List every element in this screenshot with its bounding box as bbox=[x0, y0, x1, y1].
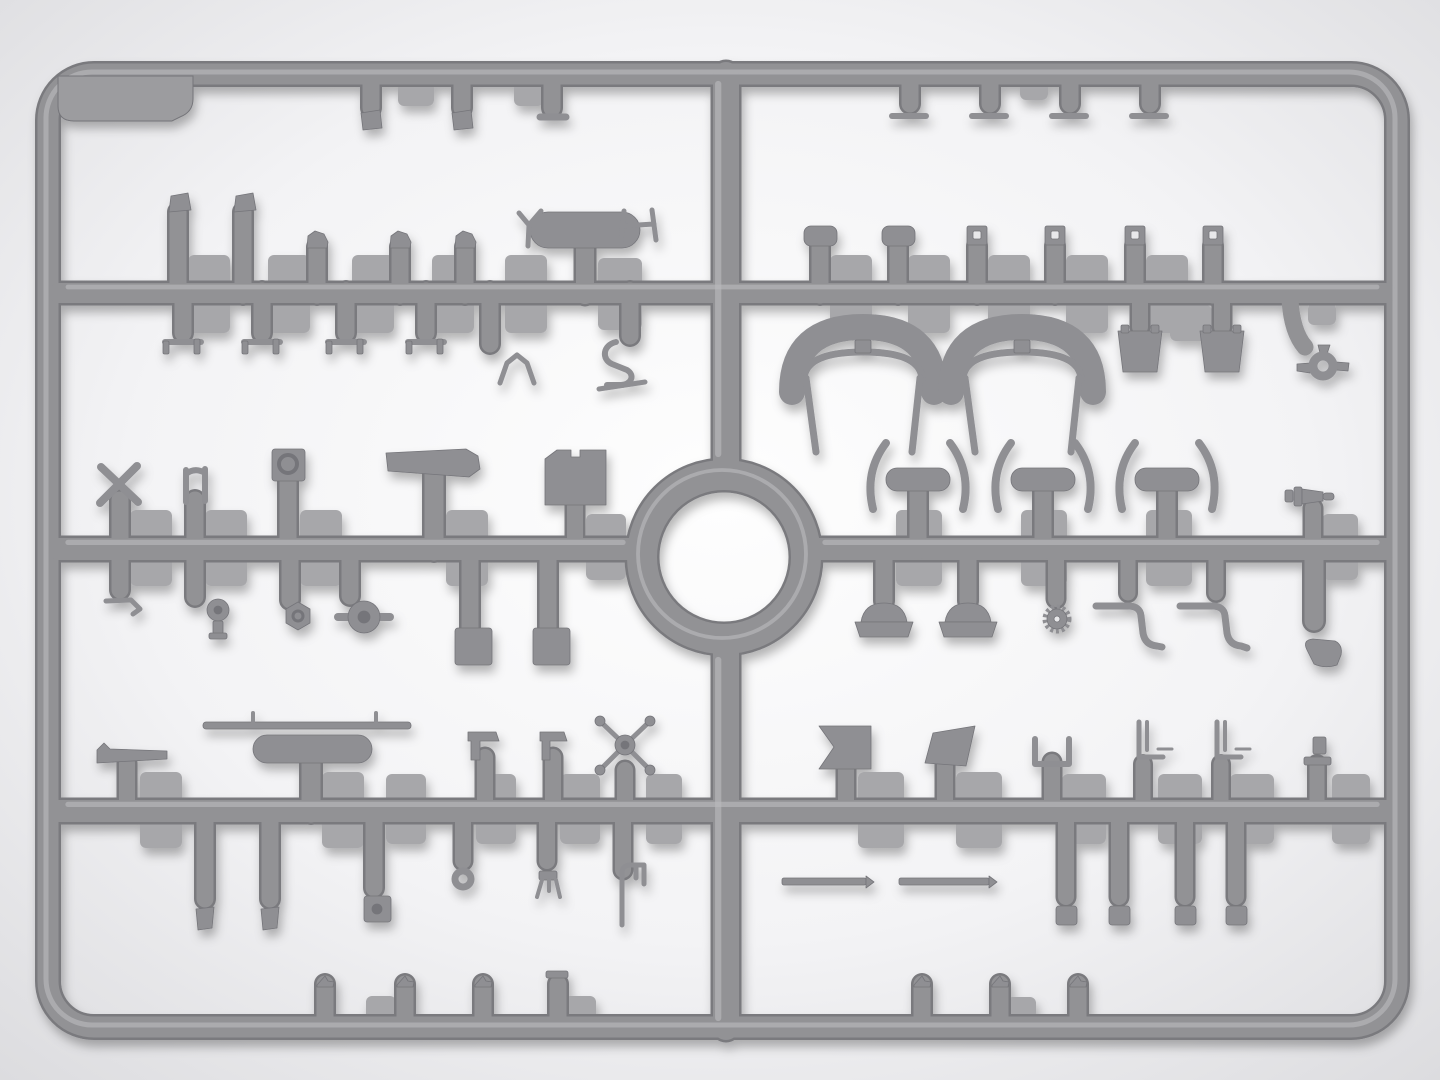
cap-shape bbox=[882, 226, 915, 246]
rod-long-shape bbox=[203, 722, 411, 729]
t-bar-shape bbox=[253, 735, 372, 763]
blank-label-tab-shape bbox=[58, 76, 193, 121]
wedge-shape bbox=[169, 193, 191, 212]
part-wedge bbox=[169, 193, 191, 212]
gear-shape bbox=[1054, 616, 1060, 622]
bench-shape bbox=[273, 339, 279, 354]
part-block bbox=[1056, 906, 1077, 925]
part-ring-clip bbox=[967, 226, 987, 245]
steering-wheel-shape bbox=[645, 716, 655, 726]
bench-shape bbox=[163, 341, 169, 354]
ring-clip-shape bbox=[1131, 231, 1139, 239]
strip-shape bbox=[899, 878, 989, 885]
part-wedge bbox=[196, 907, 214, 930]
steering-wheel-shape bbox=[595, 765, 605, 775]
part-wedge bbox=[261, 907, 279, 930]
bucket-shape bbox=[1203, 325, 1211, 333]
steering-wheel-shape bbox=[645, 765, 655, 775]
steering-wheel-shape bbox=[621, 741, 629, 749]
wing-nut-shape bbox=[1297, 363, 1310, 373]
part-ring-clip bbox=[1125, 226, 1145, 245]
dome-shape bbox=[939, 622, 997, 637]
plug-shape bbox=[1323, 493, 1334, 500]
mold-pad bbox=[1308, 303, 1336, 325]
ring-clip-shape bbox=[1209, 231, 1217, 239]
valve-shape bbox=[209, 633, 227, 639]
t-grip-shape bbox=[1135, 468, 1199, 491]
part-clip bbox=[361, 110, 382, 130]
part-box bbox=[455, 628, 492, 665]
bucket-shape bbox=[1233, 325, 1241, 333]
bucket-shape bbox=[1151, 325, 1159, 333]
render-canvas bbox=[0, 0, 1440, 1080]
wing-nut-shape bbox=[1336, 362, 1349, 371]
clip-shape bbox=[452, 110, 473, 130]
seat-frame-shape bbox=[1014, 340, 1030, 353]
valve-shape bbox=[213, 621, 223, 634]
angle-clip-shape bbox=[1313, 737, 1326, 754]
part-block bbox=[1109, 906, 1130, 925]
bench-shape bbox=[437, 339, 443, 354]
bench-shape bbox=[326, 341, 332, 354]
box-shape bbox=[455, 628, 492, 665]
part-hub-plate bbox=[272, 449, 305, 481]
part-block bbox=[1226, 906, 1247, 925]
seat-frame-shape bbox=[855, 340, 871, 353]
part-clip bbox=[452, 110, 473, 130]
ring-clip-shape bbox=[973, 231, 981, 239]
part-bar-clip bbox=[546, 971, 568, 978]
sprue-render bbox=[0, 0, 1440, 1080]
dome-shape bbox=[855, 622, 913, 637]
block-shape bbox=[1056, 906, 1077, 925]
blank-label-tab bbox=[58, 76, 193, 121]
bench-shape bbox=[357, 339, 363, 354]
part-ring-clip bbox=[1203, 226, 1223, 245]
bucket-shape bbox=[1200, 331, 1244, 372]
part-bucket bbox=[1200, 325, 1244, 372]
block-shape bbox=[1226, 906, 1247, 925]
ring-clip-shape bbox=[1051, 231, 1059, 239]
valve-shape bbox=[214, 606, 222, 614]
wedge-shape bbox=[196, 907, 214, 930]
block-shape bbox=[1175, 906, 1196, 925]
part-cap bbox=[882, 226, 915, 246]
wheel-shape bbox=[358, 611, 370, 623]
part-t-bar bbox=[253, 735, 372, 763]
part-block bbox=[1175, 906, 1196, 925]
angle-clip-shape bbox=[1304, 757, 1331, 765]
clip-shape bbox=[361, 110, 382, 130]
plug-shape bbox=[1294, 487, 1302, 506]
bucket-shape bbox=[1121, 325, 1129, 333]
part-notch-plate bbox=[545, 450, 606, 505]
strip-shape bbox=[782, 878, 866, 885]
cap-shape bbox=[804, 226, 837, 246]
steering-wheel-shape bbox=[595, 716, 605, 726]
wedge-shape bbox=[261, 907, 279, 930]
part-wedge bbox=[234, 193, 256, 212]
t-grip-shape bbox=[886, 468, 950, 491]
wedge-shape bbox=[234, 193, 256, 212]
part-ring-clip bbox=[1045, 226, 1065, 245]
part-bucket bbox=[1118, 325, 1162, 372]
box-shape bbox=[533, 628, 570, 665]
plate-dot-shape bbox=[372, 904, 382, 914]
plug-shape bbox=[1302, 489, 1323, 504]
t-grip-shape bbox=[1011, 468, 1075, 491]
part-cap bbox=[804, 226, 837, 246]
block-shape bbox=[1109, 906, 1130, 925]
bench-shape bbox=[406, 341, 412, 354]
bucket-shape bbox=[1118, 331, 1162, 372]
bench-shape bbox=[194, 339, 200, 354]
bench-shape bbox=[242, 341, 248, 354]
part-plate-dot bbox=[364, 896, 391, 922]
plug-shape bbox=[1285, 490, 1293, 502]
part-box bbox=[533, 628, 570, 665]
bar-clip-shape bbox=[546, 971, 568, 978]
notch-plate-shape bbox=[545, 450, 606, 505]
